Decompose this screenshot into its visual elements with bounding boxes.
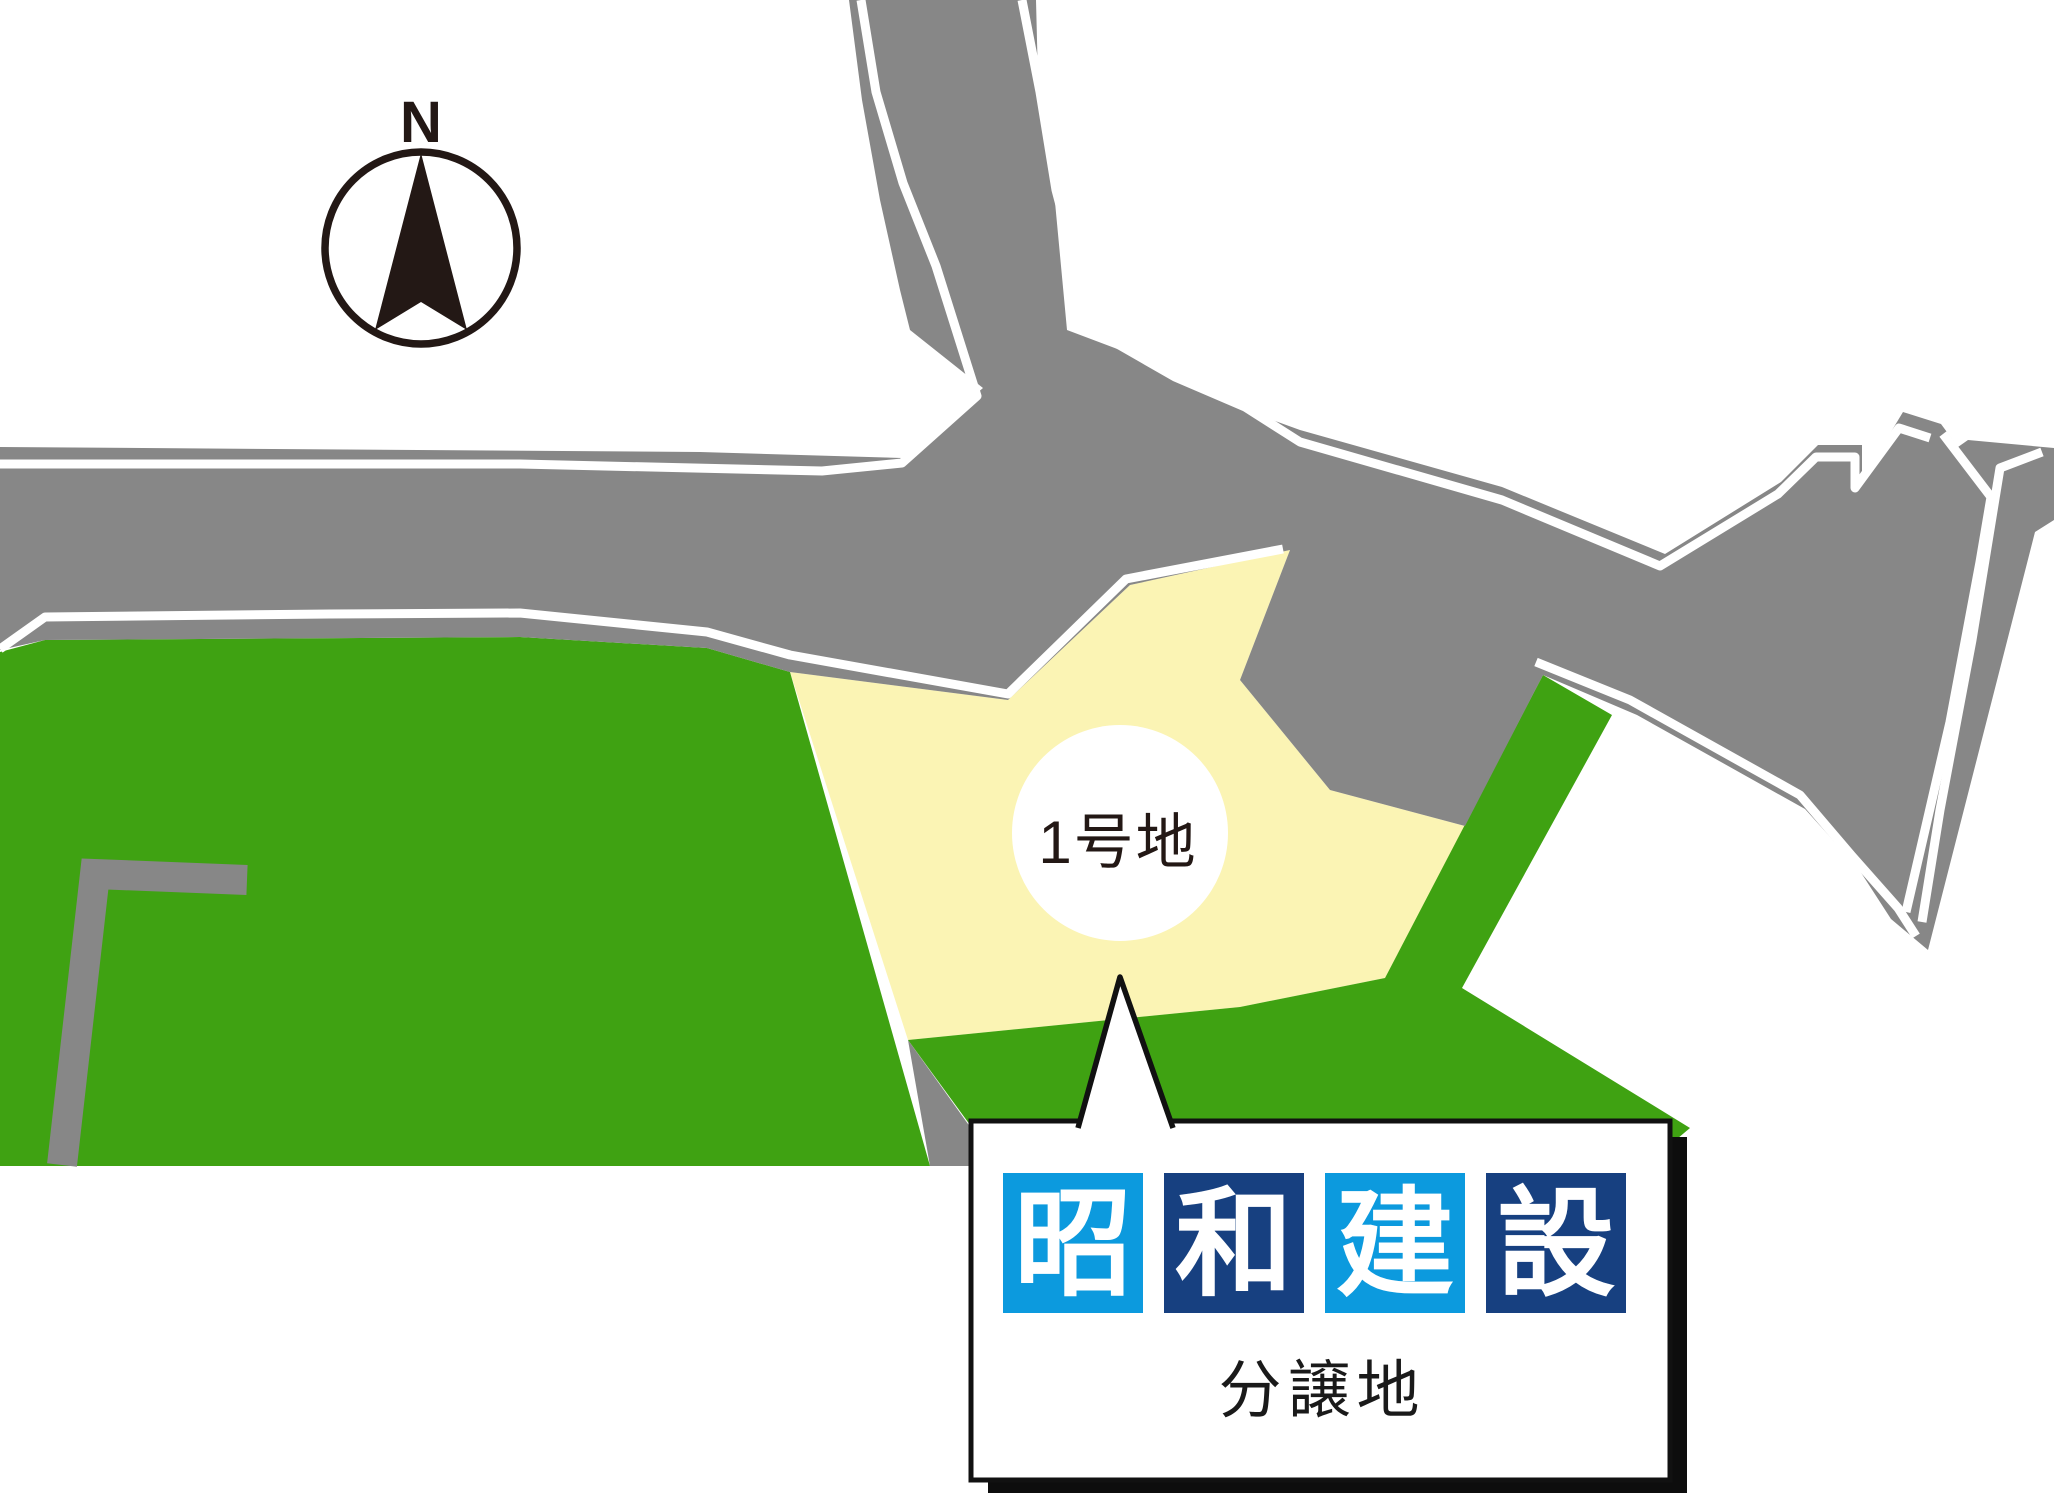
lot-1-label: 1号地: [1038, 809, 1197, 876]
logo-char-3: 建: [1336, 1179, 1454, 1311]
green-area-left: [0, 637, 930, 1166]
logo-char-1: 昭: [1014, 1179, 1132, 1311]
logo-char-2: 和: [1175, 1179, 1293, 1311]
compass-north-label: N: [400, 90, 442, 155]
logo-char-4: 設: [1497, 1179, 1615, 1311]
site-location-map: 1号地 N 昭 和 建 設 分譲地: [0, 0, 2054, 1493]
callout-caption: 分譲地: [1219, 1356, 1426, 1426]
